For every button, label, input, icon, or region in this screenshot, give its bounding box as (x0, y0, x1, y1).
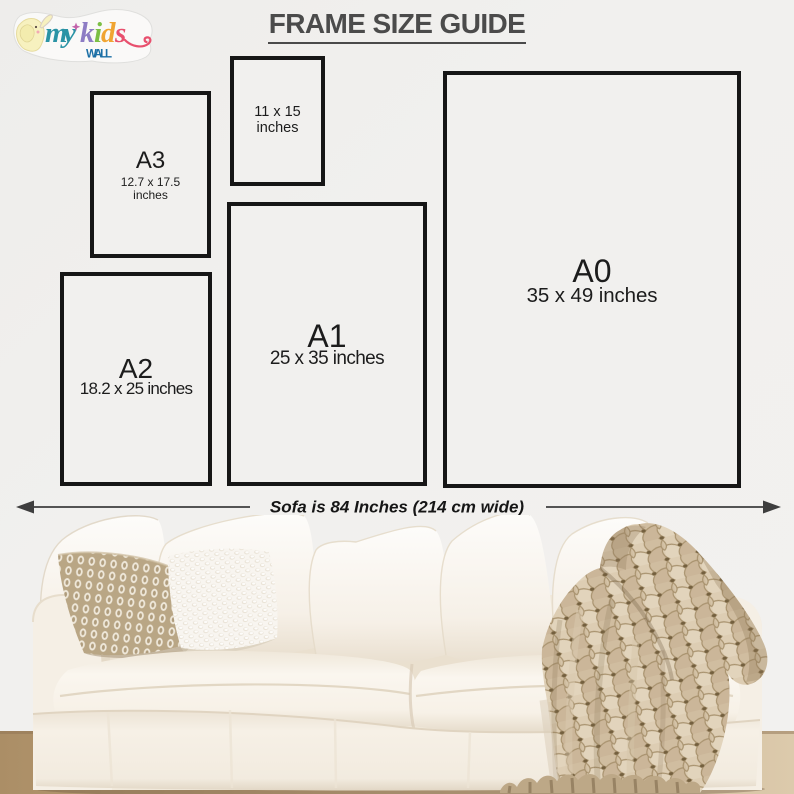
svg-text:d: d (101, 17, 116, 49)
svg-text:s: s (114, 17, 126, 49)
svg-text:k: k (80, 17, 95, 49)
svg-text:my: my (45, 17, 76, 49)
svg-text:WALL: WALL (86, 49, 112, 61)
svg-text:Sofa is 84 Inches (214 cm wide: Sofa is 84 Inches (214 cm wide) (270, 498, 525, 517)
